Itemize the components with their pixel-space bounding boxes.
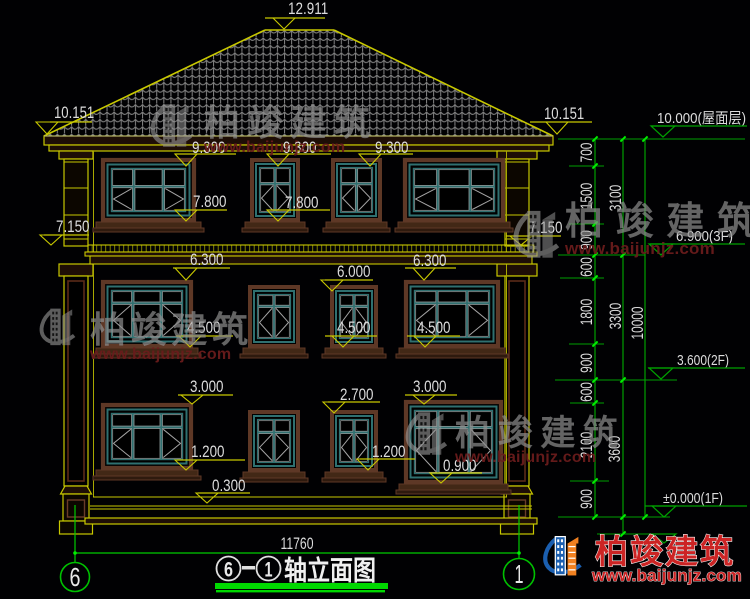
svg-text:7.800: 7.800 <box>193 192 227 211</box>
svg-text:600: 600 <box>577 257 596 277</box>
svg-text:0.300: 0.300 <box>212 476 246 495</box>
svg-text:4.500: 4.500 <box>417 318 451 337</box>
svg-text:www.baijunjz.com: www.baijunjz.com <box>564 239 715 258</box>
svg-text:3.000: 3.000 <box>190 377 224 396</box>
svg-text:www.baijunjz.com: www.baijunjz.com <box>203 139 345 156</box>
svg-text:12.911: 12.911 <box>288 0 328 18</box>
svg-text:6.300: 6.300 <box>413 251 447 270</box>
svg-text:700: 700 <box>577 143 596 163</box>
svg-text:7.150: 7.150 <box>56 217 90 236</box>
svg-text:www.baijunjz.com: www.baijunjz.com <box>591 566 742 585</box>
svg-text:3.600(2F): 3.600(2F) <box>677 352 729 369</box>
svg-text:1.200: 1.200 <box>191 442 225 461</box>
svg-text:600: 600 <box>577 382 596 402</box>
svg-text:10.151: 10.151 <box>54 103 94 122</box>
svg-text:2.700: 2.700 <box>340 385 374 404</box>
svg-text:3300: 3300 <box>606 303 625 329</box>
svg-text:www.baijunjz.com: www.baijunjz.com <box>89 346 231 363</box>
svg-text:4.500: 4.500 <box>337 318 371 337</box>
svg-text:7.800: 7.800 <box>285 193 319 212</box>
svg-text:±0.000(1F): ±0.000(1F) <box>663 490 723 507</box>
svg-text:3.000: 3.000 <box>413 377 447 396</box>
svg-text:1: 1 <box>265 559 273 582</box>
svg-text:6.000: 6.000 <box>337 262 371 281</box>
svg-text:www.baijunjz.com: www.baijunjz.com <box>454 449 596 466</box>
svg-text:10000: 10000 <box>628 307 647 340</box>
svg-text:900: 900 <box>577 353 596 373</box>
svg-text:轴立面图: 轴立面图 <box>284 555 376 586</box>
svg-text:1.200: 1.200 <box>372 442 406 461</box>
svg-text:1: 1 <box>515 559 524 589</box>
svg-text:1800: 1800 <box>577 299 596 325</box>
svg-text:11760: 11760 <box>281 534 314 553</box>
svg-text:6.300: 6.300 <box>190 250 224 269</box>
svg-text:10.000(屋面层): 10.000(屋面层) <box>657 110 746 127</box>
svg-text:6: 6 <box>224 559 233 582</box>
svg-text:10.151: 10.151 <box>544 104 584 123</box>
svg-text:柏竣建筑: 柏竣建筑 <box>595 533 735 570</box>
svg-text:900: 900 <box>577 489 596 509</box>
svg-text:6: 6 <box>70 562 81 592</box>
